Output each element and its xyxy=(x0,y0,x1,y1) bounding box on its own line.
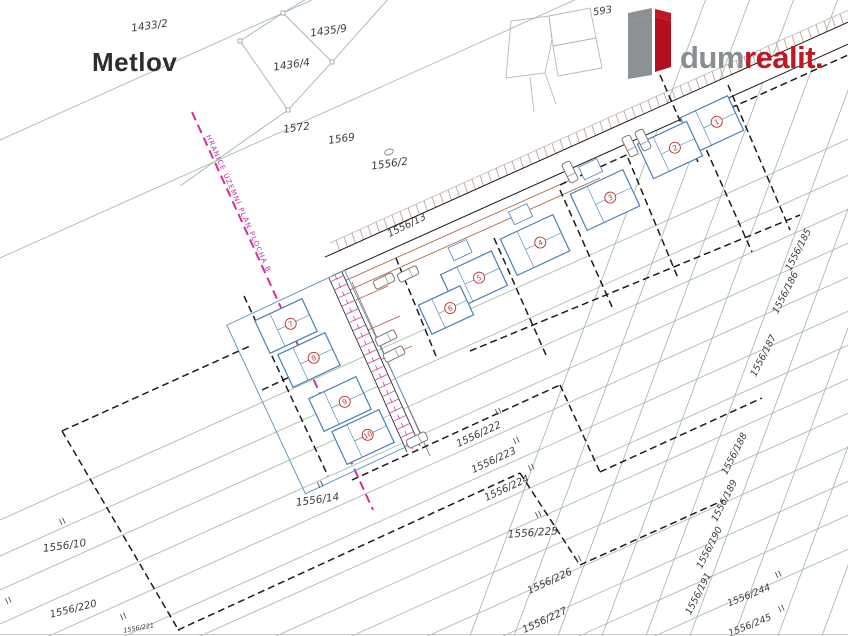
parcel-number-label: 1556/191 xyxy=(684,571,714,617)
town-label: Metlov xyxy=(92,47,177,77)
parcel-number-label: 1436/4 xyxy=(272,57,310,74)
parcel-number-label: 1556/186 xyxy=(771,270,801,316)
parcel-number-label: 1556/224 xyxy=(483,474,531,504)
parcel-number-label: 1572 xyxy=(283,120,311,136)
parcel-number-label: 593 xyxy=(592,5,612,19)
house: 4 xyxy=(491,196,569,276)
dumrealit-logo: dumrealit. xyxy=(628,8,823,79)
cadastral-ii-mark: II xyxy=(774,569,785,581)
parcel-number-label: 1556/221 xyxy=(123,621,155,634)
dumrealit-wordmark: dumrealit. xyxy=(680,40,823,75)
cadastral-ii-mark: II xyxy=(316,479,327,491)
car-icon xyxy=(397,265,420,282)
cadastral-ii-mark: II xyxy=(527,462,538,474)
dumrealit-cube-icon xyxy=(628,8,671,79)
parcel-number-label: 1435/9 xyxy=(309,22,348,39)
parcel-number-label: 1556/10 xyxy=(42,537,87,555)
cadastral-ii-mark: II xyxy=(4,595,15,607)
parcel-number-label: 1556/223 xyxy=(470,446,518,476)
parcel-number-label: 1556/245 xyxy=(727,612,773,636)
cadastral-ii-mark: II xyxy=(119,611,130,623)
cadastral-plan-image: HRANICE ÚZEMNÍ PLÁN PLOCHA B 12345678910… xyxy=(0,0,848,636)
cadastral-ii-mark: II xyxy=(512,435,523,447)
parcel-number-label: 1556/188 xyxy=(720,431,750,477)
parcel-number-label: 1556/225 xyxy=(507,525,558,541)
parcel-number-label: 1433/2 xyxy=(130,17,169,34)
cadastral-ii-mark: II xyxy=(494,406,505,418)
parcel-number-label: 1556/189 xyxy=(710,478,740,524)
parcel-number-label: 1556/226 xyxy=(526,567,574,597)
parcel-number-label: 1556/222 xyxy=(455,420,503,450)
parcel-number-label: 1556/2 xyxy=(370,155,409,172)
zoning-boundary-label: HRANICE ÚZEMNÍ PLÁN PLOCHA B xyxy=(204,133,273,274)
parcel-number-label: 1556/227 xyxy=(521,605,570,635)
car-icon xyxy=(375,329,398,346)
parcel-number-label: 1556/187 xyxy=(749,333,779,379)
parcel-number-label: 1569 xyxy=(328,131,356,147)
parcel-number-label: 1556/244 xyxy=(726,582,772,609)
boundary-dashed-lines xyxy=(62,55,848,631)
car-icon xyxy=(383,345,406,362)
parcel-number-label: 1556/14 xyxy=(295,491,340,509)
